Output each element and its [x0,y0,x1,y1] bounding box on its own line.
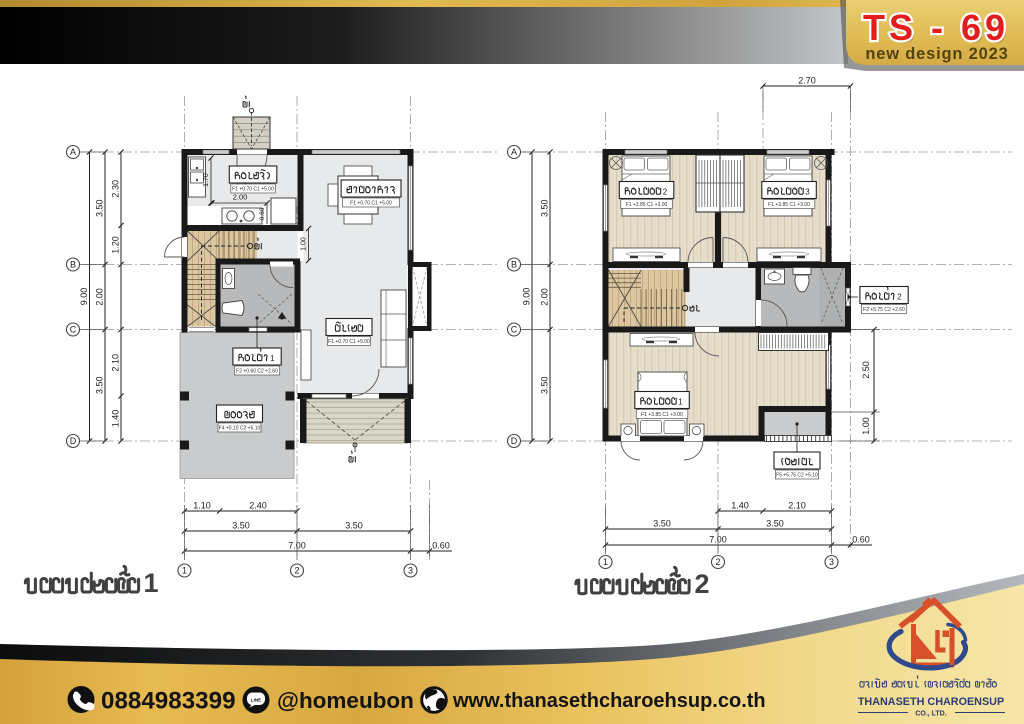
svg-text:2: 2 [897,293,902,302]
svg-text:A: A [70,147,76,157]
svg-text:C: C [511,325,518,335]
svg-text:F4 +0.10 C2 +5.10: F4 +0.10 C2 +5.10 [219,426,261,432]
svg-text:3.50: 3.50 [95,199,105,217]
svg-text:F1 +3.85 C1 +3.00: F1 +3.85 C1 +3.00 [626,202,668,208]
svg-text:1.40: 1.40 [731,501,749,511]
svg-text:new design 2023: new design 2023 [865,45,1008,63]
svg-text:1.40: 1.40 [111,410,121,428]
svg-text:F1 +3.85 C1 +3.00: F1 +3.85 C1 +3.00 [768,202,810,208]
svg-text:2.00: 2.00 [233,193,248,202]
svg-text:0.60: 0.60 [852,535,870,545]
svg-text:F1 +0.70 C1 +5.00: F1 +0.70 C1 +5.00 [350,201,392,207]
svg-text:3.50: 3.50 [540,376,550,394]
svg-text:0.60: 0.60 [432,541,450,551]
svg-text:1: 1 [678,398,683,407]
svg-text:2.70: 2.70 [798,76,816,86]
svg-text:D: D [511,436,518,446]
svg-text:@homeubon: @homeubon [277,688,414,713]
svg-text:3.50: 3.50 [95,376,105,394]
svg-text:1: 1 [182,566,187,576]
svg-text:2.30: 2.30 [111,180,121,198]
svg-text:F1 +0.70 C1 +5.00: F1 +0.70 C1 +5.00 [232,187,274,193]
svg-text:2: 2 [663,188,668,197]
svg-text:3.50: 3.50 [766,519,784,529]
svg-text:2.50: 2.50 [861,361,871,379]
svg-text:2: 2 [715,557,720,567]
svg-text:3.50: 3.50 [345,521,363,531]
svg-text:3.50: 3.50 [653,519,671,529]
svg-text:2.00: 2.00 [540,288,550,306]
svg-text:2.40: 2.40 [249,501,267,511]
svg-text:F1 +3.85 C1 +3.00: F1 +3.85 C1 +3.00 [641,412,683,418]
svg-text:LINE: LINE [251,697,261,702]
svg-text:3: 3 [408,566,413,576]
svg-text:1.10: 1.10 [193,501,211,511]
svg-text:D: D [70,436,77,446]
svg-text:1.00: 1.00 [301,237,308,251]
svg-text:F1 +0.70 C1 +5.00: F1 +0.70 C1 +5.00 [328,339,370,345]
svg-text:1.00: 1.00 [861,417,871,435]
svg-text:9.00: 9.00 [522,288,532,306]
svg-text:1: 1 [270,354,275,363]
svg-text:9.00: 9.00 [79,288,89,306]
svg-text:3.50: 3.50 [540,199,550,217]
svg-text:TS - 69: TS - 69 [863,7,1009,48]
svg-text:THANASETH CHAROENSUP: THANASETH CHAROENSUP [858,696,1004,708]
svg-text:F2 +5.75 C2 +2.60: F2 +5.75 C2 +2.60 [863,307,905,313]
svg-text:F2 +0.60 C2 +2.60: F2 +0.60 C2 +2.60 [236,369,278,375]
svg-text:CO., LTD.: CO., LTD. [915,711,946,718]
svg-text:B: B [70,260,76,270]
svg-text:2.00: 2.00 [95,288,105,306]
svg-text:0884983399: 0884983399 [101,688,236,715]
svg-text:2.10: 2.10 [788,501,806,511]
svg-text:A: A [511,147,517,157]
svg-text:3.50: 3.50 [232,521,250,531]
svg-text:B: B [511,260,517,270]
svg-text:2.10: 2.10 [111,354,121,372]
svg-text:0.60: 0.60 [259,207,266,220]
svg-text:2: 2 [294,566,299,576]
svg-text:1.70: 1.70 [203,173,210,187]
svg-text:1: 1 [603,557,608,567]
svg-text:3: 3 [805,188,810,197]
svg-text:C: C [70,325,77,335]
svg-text:F5 +5.75 C2 +5.10: F5 +5.75 C2 +5.10 [776,473,818,479]
svg-text:1.20: 1.20 [111,236,121,254]
svg-text:1: 1 [143,568,158,598]
svg-text:2: 2 [694,569,709,599]
svg-text:www.thanasethcharoehsup.co.th: www.thanasethcharoehsup.co.th [452,690,766,712]
svg-text:3: 3 [829,557,834,567]
